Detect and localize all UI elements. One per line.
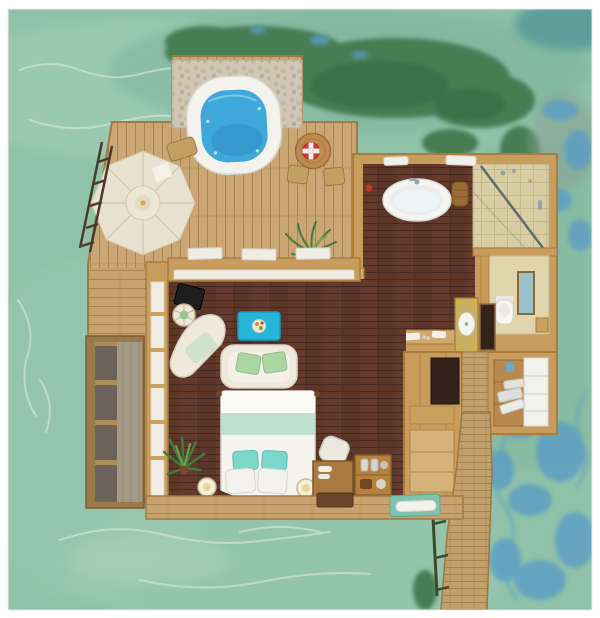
seagrass-dark [435,89,505,121]
sliding-door-track [174,270,354,279]
basket [452,182,468,206]
parasol-pole [141,201,146,206]
red-vase [366,185,373,192]
open-door-leaf [242,249,276,261]
tv [431,358,459,404]
lamp-glow [302,484,310,492]
lamp-glow [203,483,211,491]
blue-patch [508,484,552,516]
toilet-seat [499,303,510,317]
sink-right [455,298,478,352]
life-ring [303,143,320,160]
closet [486,352,557,434]
border-bottom [0,610,600,618]
minibar-box [360,479,372,489]
sofa [221,345,297,388]
foam-patch [70,534,230,586]
step-edge [95,420,117,425]
fruit [261,322,264,325]
cup [380,461,388,469]
blue-patch [310,35,330,45]
closet-blue-box [506,362,514,372]
blue-patch [542,100,578,120]
rolled-towel [318,466,332,472]
towel [446,155,476,165]
door-divider [150,420,165,424]
tub-spout [409,178,416,181]
bed-post [314,391,320,397]
dressing-desk [313,461,353,497]
bed-runner [221,413,315,435]
rolled-towel [396,500,436,511]
closet-drawers [524,358,548,426]
sink-drain [465,322,469,326]
shower-fixture [512,169,516,173]
wall-mirror [518,272,534,314]
duvet-fold [221,391,315,415]
teal-pillow [261,450,287,470]
blue-patch [250,26,266,34]
border-right [592,0,600,618]
open-door-leaf [188,247,222,259]
shower-head [501,171,506,176]
bedroom-left-wall [146,262,168,508]
mint-pillow [262,351,287,373]
mint-pillow [235,352,261,375]
open-door-leaf [296,248,330,260]
fruit [255,322,259,326]
step-edge [95,380,117,385]
seagrass-dark [310,61,450,109]
seagrass [422,129,478,157]
villa-floorplan-rendering [0,0,600,618]
dining-chair [323,167,345,186]
door-divider [150,384,165,388]
coffee-table [238,312,280,340]
blue-patch [564,130,592,170]
bench-ledge [146,493,463,519]
white-pillow [225,468,256,494]
serving-tray [317,493,353,507]
deck-side-strip [89,268,148,338]
minibar [355,455,391,495]
hot-tub [184,74,283,177]
entry-landing [462,352,488,414]
towel [432,331,446,339]
bed-post [216,391,222,397]
fruit [259,326,263,330]
rolled-towel [318,474,330,479]
towel [384,157,408,166]
blue-patch [352,51,368,59]
bathtub-water [394,190,440,213]
border-left [0,0,8,618]
water-steps [86,336,144,508]
bottle [361,459,368,471]
border-top [0,0,600,9]
brass-knob [456,300,461,305]
door-divider [150,456,165,460]
seagrass [165,26,245,58]
fruit-plate [253,320,266,333]
door-divider [150,312,165,316]
vanity-panel [480,304,495,350]
partition-wall [473,248,557,256]
amenity-bottle [422,335,426,339]
toilet-shelf [536,318,548,332]
brass-knob [456,345,461,350]
towel [404,332,420,340]
shower-fixture [528,179,531,182]
bottle [371,459,378,471]
console-shelf [410,406,454,424]
plant-pot [180,466,189,475]
brass-knob [472,345,477,350]
kettle [376,479,386,489]
blue-patch [568,219,592,251]
amenity-bottle [426,336,430,340]
step-edge [95,342,117,346]
chair-cushion [180,311,189,320]
seagrass [413,570,437,610]
entry-door-panels [410,430,454,492]
tv-console [404,352,462,500]
floorplan-canvas [0,0,600,618]
step-edge [95,460,117,465]
shower [473,164,549,252]
life-ring-center [309,149,314,154]
teal-pillow [233,450,259,470]
blue-patch [555,512,595,568]
blue-patch [514,560,566,600]
steps-landing [117,342,142,502]
brass-knob [472,300,477,305]
white-pillow [257,468,288,494]
bathtub [383,178,451,221]
shower-handle [538,200,542,210]
bedroom [146,247,406,516]
door-divider [150,348,165,352]
